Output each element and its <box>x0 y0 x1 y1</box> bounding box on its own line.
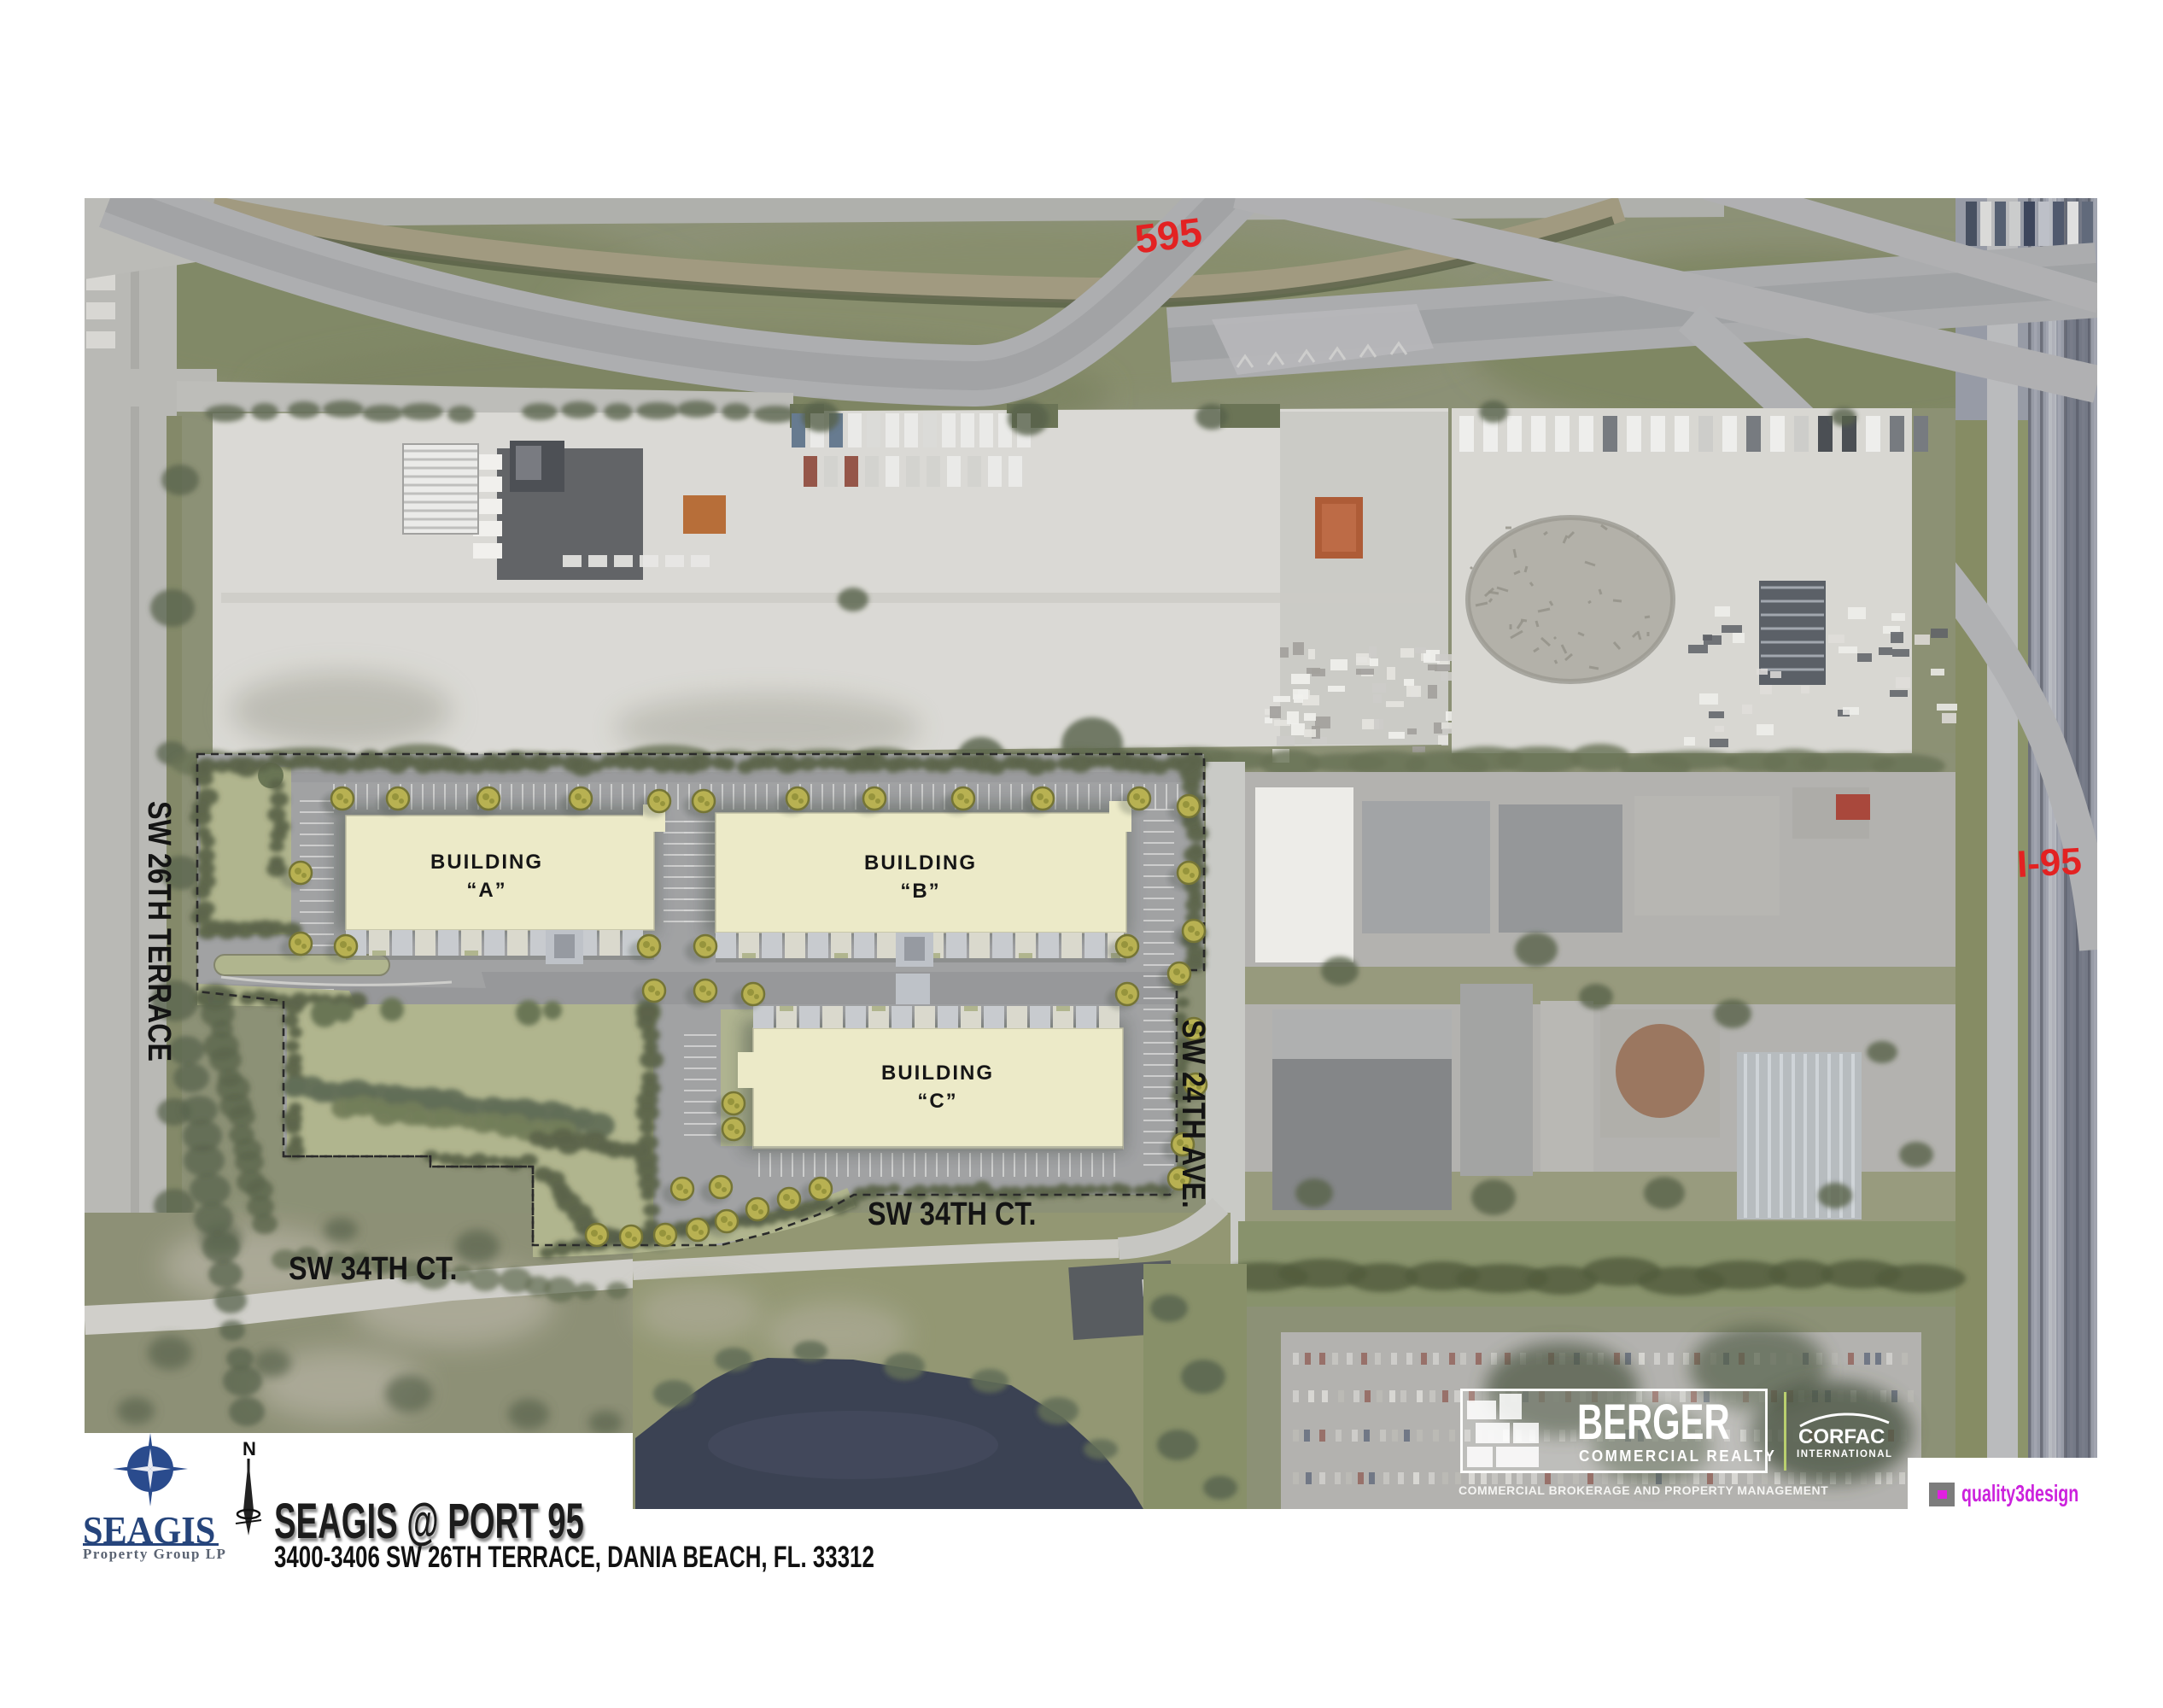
svg-text:CORFAC: CORFAC <box>1798 1425 1885 1448</box>
svg-text:N: N <box>243 1438 256 1459</box>
svg-text:INTERNATIONAL: INTERNATIONAL <box>1797 1449 1893 1459</box>
